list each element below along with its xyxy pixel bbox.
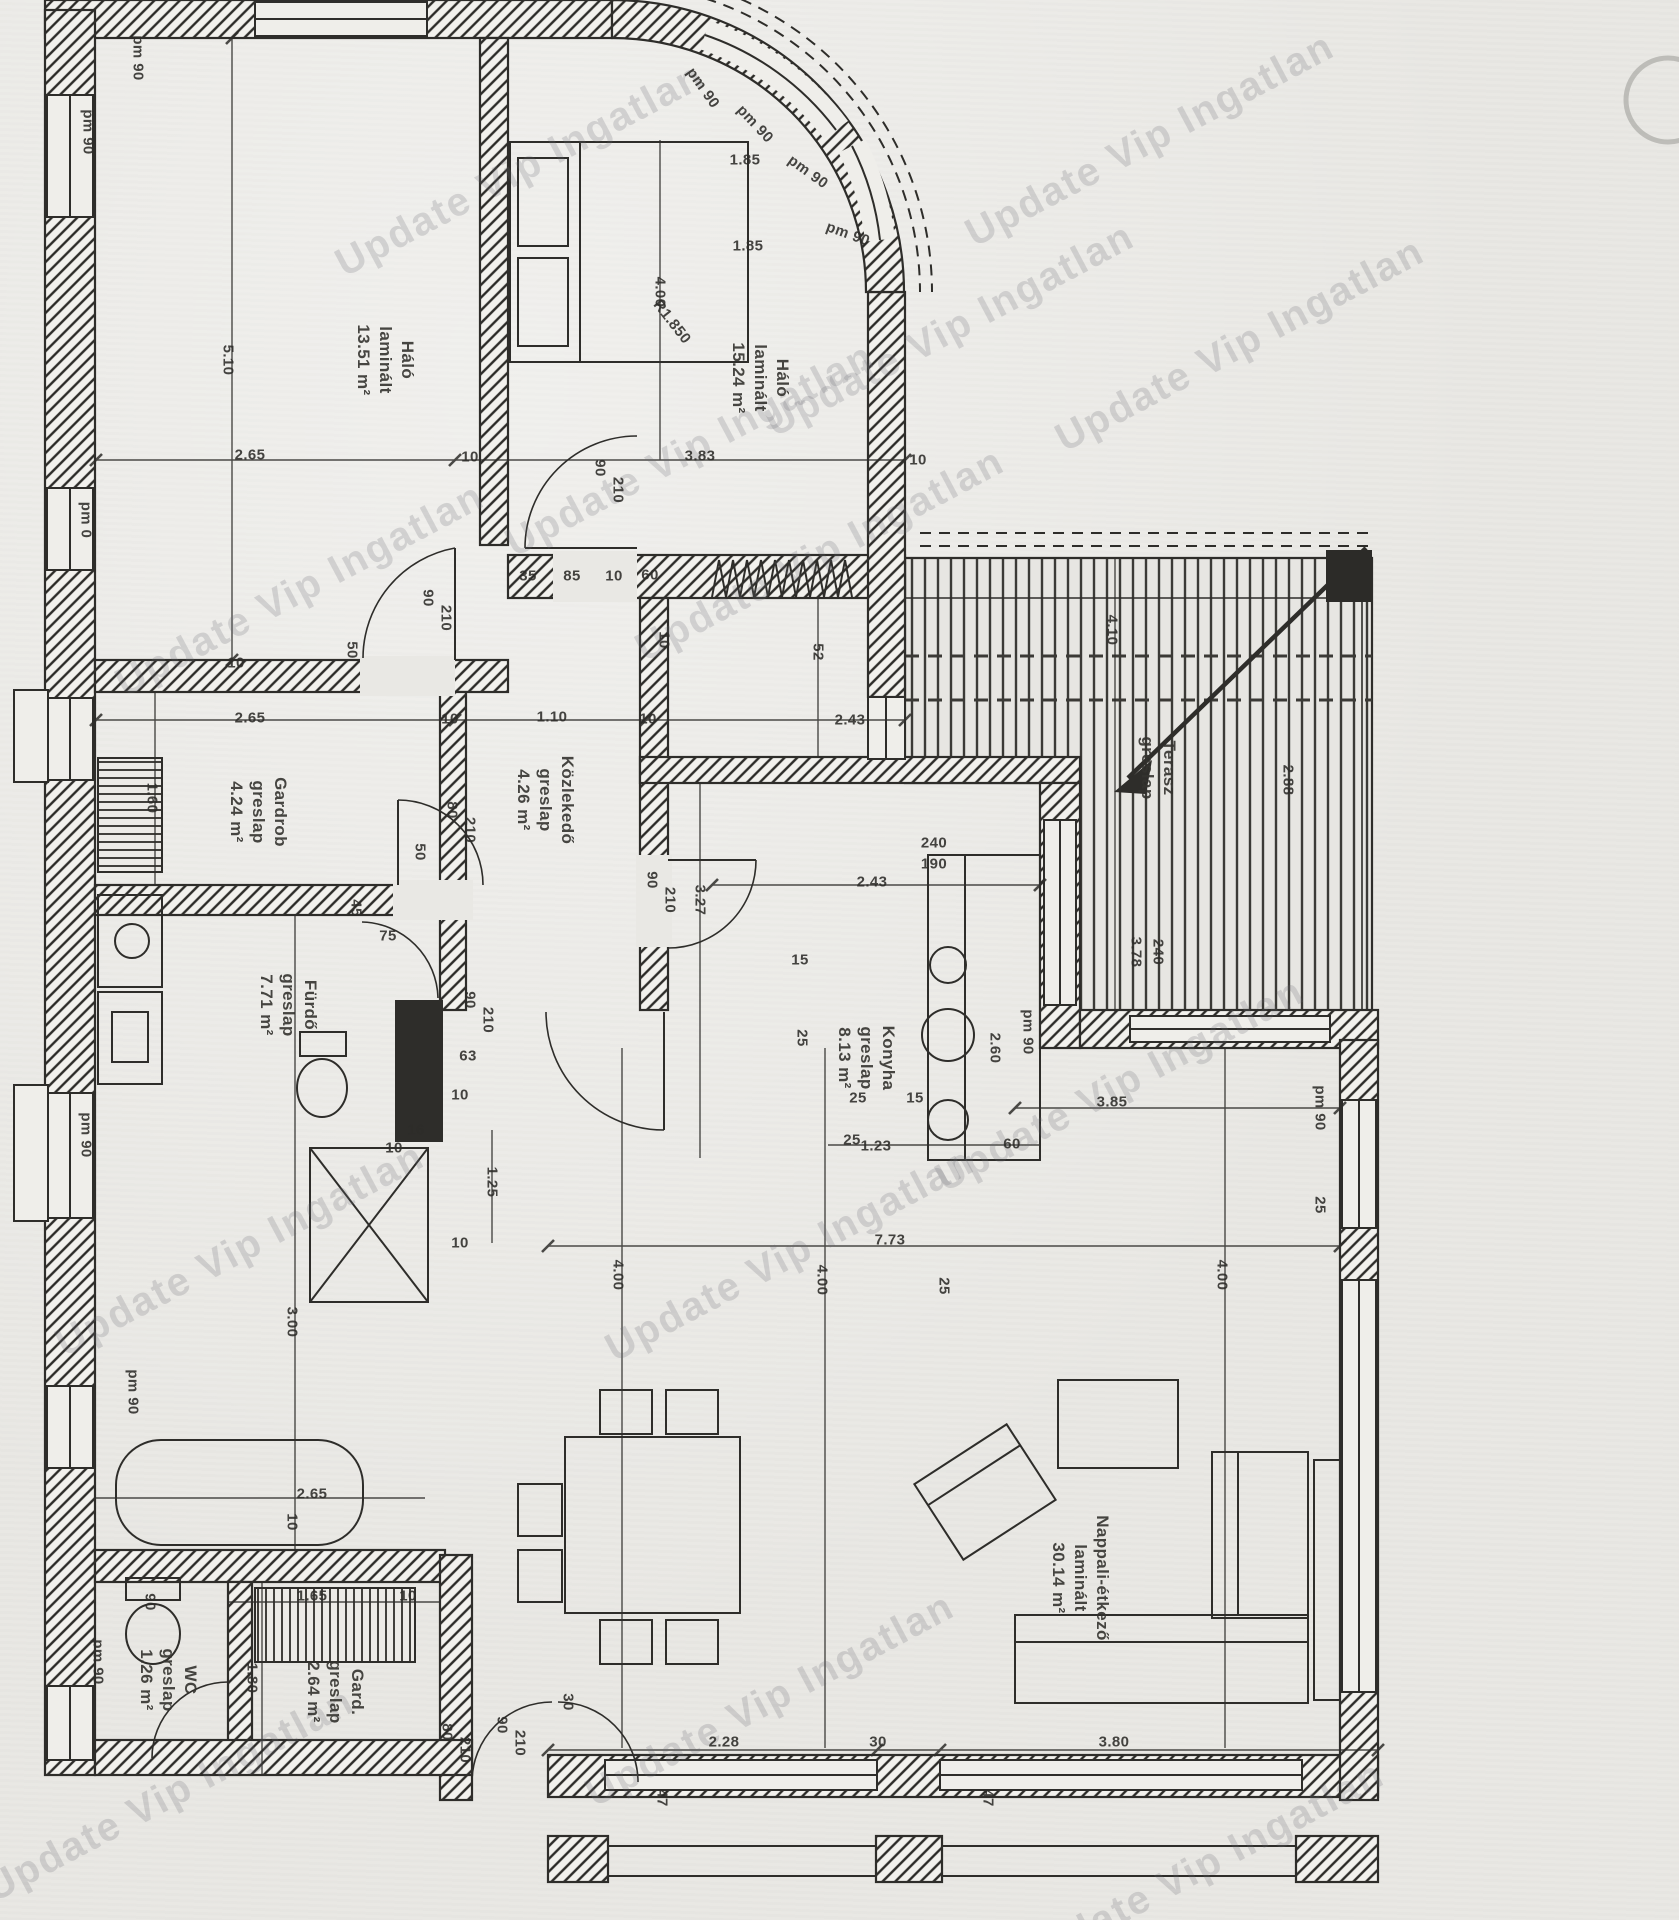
bathtub <box>116 1440 363 1545</box>
kitchen-counter <box>922 855 1040 1160</box>
dining-table <box>518 1390 740 1664</box>
washing-machine <box>98 992 162 1084</box>
toilet-wc <box>126 1578 180 1664</box>
toilet-bathroom <box>297 1032 347 1117</box>
wardrobe-rail <box>98 758 162 872</box>
armchair <box>914 1424 1055 1559</box>
terrace-post <box>1326 550 1372 602</box>
closet <box>255 1588 415 1662</box>
coffee-table <box>1058 1380 1178 1468</box>
stamp-arc <box>1626 58 1679 142</box>
tv-bench <box>1314 1460 1340 1700</box>
floor-plan-scan: Update Vip IngatlanUpdate Vip IngatlanUp… <box>0 0 1679 1920</box>
bed <box>510 142 748 362</box>
floorplan-drawing <box>0 0 1679 1920</box>
sofa <box>1015 1452 1308 1703</box>
shower <box>310 1148 428 1302</box>
shower-partition-wall <box>395 1000 443 1142</box>
roof-overhang-dashed <box>612 0 1372 546</box>
